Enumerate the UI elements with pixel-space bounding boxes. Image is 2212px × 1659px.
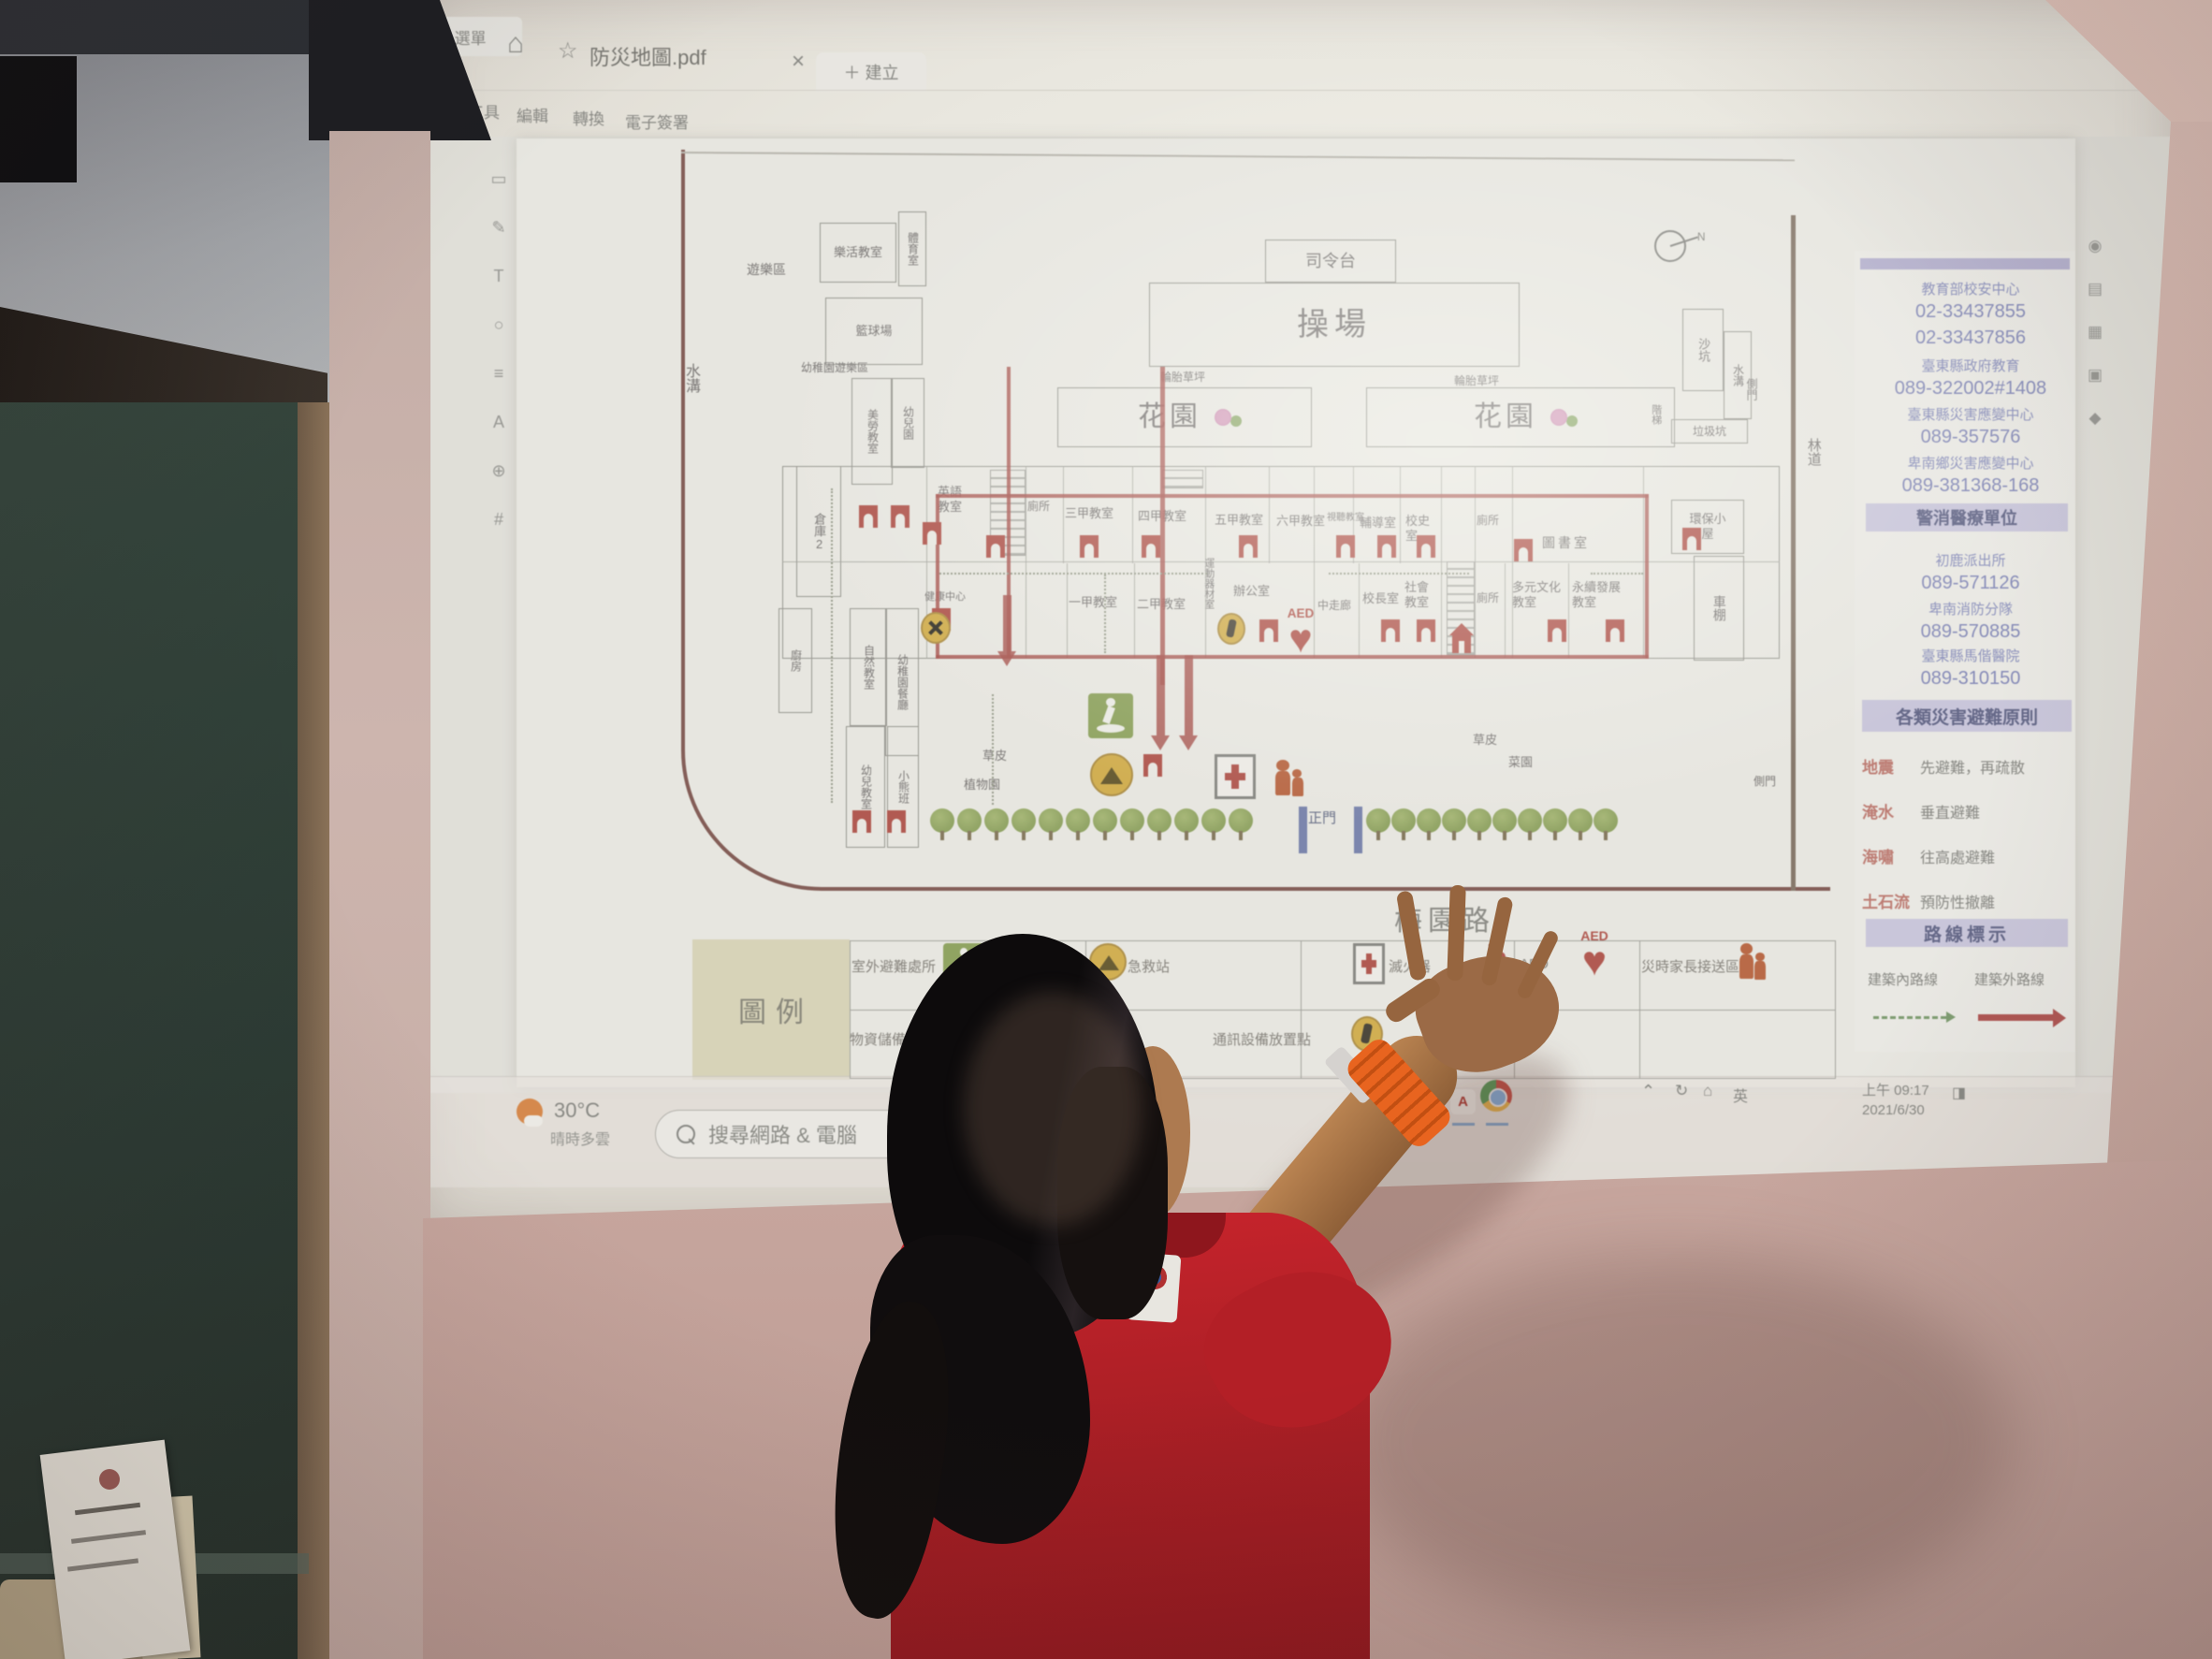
tree-icon — [957, 808, 982, 833]
exit-door-icon — [923, 522, 941, 545]
contact-name: 卑南鄉災害應變中心 — [1864, 453, 2077, 473]
contact-phone: 089-570885 — [1864, 621, 2077, 643]
map-area-box: 樂活教室 — [820, 223, 896, 283]
acrobat-tool-icon[interactable]: T — [487, 264, 511, 288]
contact-name: 臺東縣馬偕醫院 — [1864, 646, 2077, 665]
principle-type: 淹水 — [1862, 799, 1894, 822]
door-arch — [1386, 628, 1395, 642]
first-aid-cross-icon-part — [1366, 953, 1372, 975]
exit-door-icon — [1259, 619, 1278, 642]
principle-rule: 先避難，再疏散 — [1920, 755, 2025, 778]
exit-door-icon — [1417, 619, 1435, 642]
map-wall-line — [1568, 563, 1569, 659]
exit-door-icon — [859, 505, 878, 528]
contact-name: 初鹿派出所 — [1864, 550, 2077, 570]
door-arch — [1341, 544, 1350, 558]
tree-trunk — [1376, 831, 1380, 840]
tree-trunk — [1022, 831, 1026, 840]
tree-icon — [1417, 808, 1441, 833]
map-room-label: 植物園 — [964, 778, 1000, 793]
map-area-box: 垃圾坑 — [1671, 419, 1748, 444]
tree-icon — [1391, 808, 1416, 833]
evacuation-arrowhead — [1151, 735, 1170, 750]
exit-door-icon — [1377, 535, 1396, 558]
contact-name: 臺東縣災害應變中心 — [1864, 404, 2077, 424]
map-room-label: 階梯 — [1649, 404, 1662, 425]
acrobat-tool-icon[interactable]: A — [487, 410, 511, 434]
contact-phone: 089-381368-168 — [1864, 475, 2077, 497]
evacuation-arrow — [1003, 595, 1011, 651]
tree-trunk — [1503, 831, 1506, 840]
door-arch — [1146, 544, 1156, 558]
phone-icon — [1217, 613, 1245, 645]
map-room-label: 五甲教室 — [1215, 513, 1263, 528]
contact-phone: 02-33437855 — [1864, 301, 2077, 323]
door-arch — [1421, 628, 1431, 642]
map-area-box: 沙坑 — [1682, 309, 1724, 391]
principle-type: 土石流 — [1862, 889, 1910, 912]
map-room-label: 幼稚園遊樂區 — [801, 361, 868, 375]
tree-icon — [1229, 808, 1253, 833]
hair-highlight — [964, 992, 1142, 1226]
tree-icon — [1492, 808, 1517, 833]
door-arch — [892, 819, 901, 833]
map-room-label: 菜園 — [1508, 755, 1533, 770]
door-arch — [857, 819, 866, 833]
interior-route-dots — [1591, 573, 1643, 575]
tree-trunk — [1157, 831, 1161, 840]
acrobat-panel-icon[interactable]: ▦ — [2083, 320, 2107, 344]
aed-heart-icon-part: ♥ — [1284, 621, 1317, 657]
tree-trunk — [995, 831, 998, 840]
map-wall-line — [1505, 563, 1506, 659]
map-room-label: 視聽教室 — [1327, 513, 1364, 525]
door-arch — [1552, 628, 1562, 642]
map-room-label: 草皮 — [1473, 733, 1497, 748]
exit-door-icon — [1142, 535, 1160, 558]
house-icon-part — [1449, 623, 1474, 635]
tree-icon — [1594, 808, 1618, 833]
acrobat-tool-icon[interactable]: ▭ — [487, 167, 511, 191]
family-icon-part — [1754, 961, 1765, 980]
map-room-label: 廁所 — [1027, 500, 1050, 514]
evacuation-arrowhead — [1179, 735, 1198, 750]
map-room-label: 校長室 — [1362, 591, 1399, 606]
map-room-label: 永續發展 教室 — [1572, 580, 1621, 611]
tree-icon — [930, 808, 954, 833]
door-arch — [1264, 628, 1273, 642]
principle-rule: 垂直避難 — [1920, 800, 1980, 822]
running-man-icon — [1088, 693, 1133, 738]
acrobat-panel-icon[interactable]: ◆ — [2083, 406, 2107, 430]
map-room-label: 廁所 — [1477, 591, 1499, 605]
map-wall-line — [1134, 563, 1135, 659]
contact-name: 教育部校安中心 — [1864, 279, 2077, 298]
exit-door-icon — [852, 810, 871, 833]
exit-door-icon — [1336, 535, 1355, 558]
legend-label: 室外避難處所 — [851, 956, 936, 976]
acrobat-tool-icon[interactable]: ○ — [487, 313, 511, 337]
map-area-box: 體育室 — [898, 211, 926, 286]
legend-label: 急救站 — [1128, 956, 1170, 976]
map-wall-line — [1269, 466, 1270, 563]
phone-icon-part — [1226, 619, 1236, 638]
tree-trunk — [1427, 831, 1431, 840]
family-icon-part — [1755, 953, 1765, 961]
wall-speaker — [0, 56, 77, 182]
house-icon — [1449, 623, 1474, 653]
acrobat-tool-icon[interactable]: ✎ — [487, 215, 511, 240]
student-wall-shadow — [1338, 1254, 2012, 1628]
tree-icon — [1543, 808, 1567, 833]
map-room-label: 輔導室 — [1360, 516, 1396, 531]
principle-rule: 預防性撤離 — [1920, 890, 1995, 912]
acrobat-panel-icon[interactable]: ◉ — [2083, 234, 2107, 258]
tree-icon — [984, 808, 1009, 833]
first-aid-cross-icon — [1353, 943, 1385, 984]
tree-icon — [1366, 808, 1390, 833]
door-arch — [927, 531, 937, 545]
compass-icon-part: N — [1697, 230, 1706, 243]
exit-door-icon — [1381, 619, 1400, 642]
tree-icon — [1467, 808, 1492, 833]
exit-door-icon — [1143, 754, 1162, 777]
map-wall-line — [1063, 466, 1064, 563]
principle-rule: 往高處避難 — [1920, 845, 1995, 867]
tree-trunk — [1212, 831, 1215, 840]
tent-icon-part — [1100, 767, 1123, 784]
exit-door-icon — [986, 535, 1005, 558]
tree-trunk — [1049, 831, 1053, 840]
tree-trunk — [1185, 831, 1188, 840]
map-room-label: 社會 教室 — [1404, 580, 1429, 611]
family-icon-part — [1292, 778, 1303, 796]
map-room-label: 側門 — [1744, 378, 1758, 400]
tools-icon — [921, 612, 951, 644]
map-room-label: 三甲教室 — [1065, 506, 1113, 521]
tree-trunk — [1452, 831, 1456, 840]
tent-icon — [1090, 753, 1133, 796]
tree-trunk — [1076, 831, 1080, 840]
tree-trunk — [1553, 831, 1557, 840]
contact-name: 卑南消防分隊 — [1864, 599, 2077, 618]
ceiling-strip — [0, 0, 329, 54]
tree-icon — [1201, 808, 1226, 833]
map-room-label: 林道 — [1804, 438, 1822, 466]
flower-icon — [1550, 409, 1567, 426]
blackboard-frame — [298, 402, 329, 1659]
evacuation-arrowhead — [997, 651, 1016, 666]
family-icon-part — [1740, 943, 1754, 954]
door-arch — [1687, 536, 1696, 550]
map-room-label: 草皮 — [982, 749, 1007, 764]
contact-phone: 089-571126 — [1864, 573, 2077, 594]
legend-label: 通訊設備放置點 — [1213, 1029, 1311, 1049]
contact-phone: 089-357576 — [1864, 427, 2077, 448]
contact-phone: 089-322002#1408 — [1864, 378, 2077, 400]
tree-icon — [1174, 808, 1199, 833]
exit-door-icon — [1080, 535, 1099, 558]
stairs-hatch — [1162, 470, 1203, 488]
evacuation-route-line — [1160, 367, 1165, 685]
door-arch — [1519, 547, 1528, 561]
evacuation-arrow — [1185, 655, 1193, 735]
tree-icon — [1442, 808, 1466, 833]
aed-heart-icon: AED♥ — [1284, 608, 1317, 657]
compass-icon: N — [1654, 230, 1707, 266]
family-icon-part — [1275, 771, 1291, 795]
tree-trunk — [1477, 831, 1481, 840]
map-room-label: 圖書室 — [1542, 535, 1590, 552]
family-icon-part — [1739, 954, 1754, 979]
exit-door-icon — [887, 810, 906, 833]
acrobat-tool-icon[interactable]: ⊕ — [487, 458, 511, 483]
map-room-label: 水溝 — [681, 363, 700, 393]
tree-trunk — [940, 831, 944, 840]
tent-icon-part — [1099, 955, 1119, 970]
map-area-box: 司令台 — [1265, 240, 1396, 283]
door-arch — [991, 544, 1000, 558]
map-wall-line — [1400, 466, 1401, 563]
first-aid-cross-icon-part — [1231, 764, 1239, 788]
map-room-label: 一甲教室 — [1069, 595, 1117, 610]
contact-phone: 02-33437856 — [1864, 327, 2077, 349]
map-area-box: 水溝 — [1724, 331, 1752, 419]
door-arch — [1421, 544, 1431, 558]
interior-route-dots — [1329, 573, 1469, 575]
tree-icon — [1518, 808, 1542, 833]
evacuation-arrow — [1157, 655, 1165, 735]
map-wall-line — [782, 561, 1780, 562]
exit-door-icon — [891, 505, 910, 528]
tree-trunk — [1402, 831, 1405, 840]
tree-trunk — [1528, 831, 1532, 840]
classroom-photo: ≡ 選單 ⌂ ☆ 防災地圖.pdf × ＋ 建立 所有工具 編輯 轉換 電子簽署… — [0, 0, 2212, 1659]
finger-middle — [1447, 885, 1466, 982]
certificate-seal — [99, 1469, 120, 1490]
wall-left-of-screen — [329, 131, 430, 1659]
map-wall-line — [1132, 466, 1133, 563]
door-arch — [1244, 544, 1253, 558]
map-room-label: 英語 教室 — [938, 485, 962, 516]
door-arch — [864, 514, 873, 528]
contact-phone: 089-310150 — [1864, 668, 2077, 690]
door-arch — [1382, 544, 1391, 558]
family-icon-part — [1292, 769, 1302, 778]
tree-trunk — [1579, 831, 1582, 840]
map-room-label: 遊樂區 — [747, 262, 786, 279]
family-icon — [1739, 943, 1767, 981]
interior-route-dots — [992, 694, 994, 805]
exit-door-icon — [1548, 619, 1566, 642]
running-man-icon-part — [1102, 706, 1114, 725]
principle-type: 地震 — [1862, 754, 1894, 778]
door-arch — [1148, 763, 1157, 777]
running-man-icon-part — [1097, 724, 1126, 734]
tree-trunk — [1130, 831, 1134, 840]
first-aid-cross-icon — [1215, 754, 1256, 799]
tree-icon — [1039, 808, 1063, 833]
map-room-label: 輪胎草坪 — [1454, 374, 1499, 388]
map-area-box: 操場 — [1149, 283, 1520, 367]
map-room-label: 健康中心 — [924, 591, 966, 604]
interior-route-dots — [831, 488, 833, 803]
map-room-label: 輪胎草坪 — [1160, 371, 1205, 385]
tree-icon — [1568, 808, 1593, 833]
map-room-label: 六甲教室 — [1276, 514, 1325, 529]
map-room-label: 側門 — [1754, 775, 1776, 789]
family-icon-part — [1276, 760, 1289, 771]
map-area-box: 花園 — [1057, 387, 1312, 447]
map-room-label: 中走廊 — [1317, 599, 1351, 613]
map-room-label: 運動器材室 — [1201, 558, 1215, 609]
tree-icon — [1066, 808, 1090, 833]
contact-name: 臺東縣政府教育 — [1864, 356, 2077, 375]
interior-route-dots — [939, 573, 1207, 575]
tree-icon — [1011, 808, 1036, 833]
exit-door-icon — [1239, 535, 1258, 558]
aed-heart-icon: AED♥ — [1576, 930, 1613, 981]
map-wall-line — [1067, 563, 1068, 659]
flower-icon — [1215, 409, 1231, 426]
tree-trunk — [1103, 831, 1107, 840]
map-room-label: 廁所 — [1477, 514, 1499, 528]
map-area-box: 花園 — [1366, 387, 1675, 447]
legend-label: 災時家長接送區 — [1641, 956, 1739, 976]
map-wall-line — [1359, 563, 1360, 659]
acrobat-panel-icon[interactable]: ▣ — [2083, 363, 2107, 387]
map-area-box: 幼兒園 — [891, 378, 924, 468]
exit-door-icon — [1606, 619, 1624, 642]
exit-door-icon — [1514, 539, 1533, 561]
acrobat-tool-icon[interactable]: # — [487, 507, 511, 531]
house-icon-part — [1459, 641, 1464, 653]
evacuation-route-line — [1645, 494, 1649, 659]
door-arch — [1610, 628, 1620, 642]
acrobat-panel-icon[interactable]: ▤ — [2083, 277, 2107, 301]
evacuation-route-line — [936, 494, 1649, 498]
interior-route-dots — [1104, 575, 1106, 653]
principle-type: 海嘯 — [1862, 844, 1894, 867]
tree-icon — [1120, 808, 1144, 833]
tree-icon — [1093, 808, 1117, 833]
map-area-box: 籃球場 — [825, 298, 923, 365]
map-room-label: 辦公室 — [1233, 584, 1270, 599]
exit-door-icon — [1682, 528, 1701, 550]
gate-icon — [1299, 807, 1362, 853]
exit-door-icon — [1417, 535, 1435, 558]
acrobat-tool-icon[interactable]: ≡ — [487, 361, 511, 386]
family-icon — [1274, 760, 1304, 797]
tree-icon — [1147, 808, 1171, 833]
door-arch — [895, 514, 905, 528]
gate-icon-part — [1299, 807, 1307, 853]
tree-trunk — [968, 831, 971, 840]
tree-trunk — [1239, 831, 1243, 840]
aed-heart-icon-part: ♥ — [1576, 943, 1613, 981]
map-room-label: 多元文化 教室 — [1512, 580, 1561, 611]
tree-trunk — [1604, 831, 1608, 840]
gate-icon-part — [1354, 807, 1362, 853]
door-arch — [1084, 544, 1094, 558]
